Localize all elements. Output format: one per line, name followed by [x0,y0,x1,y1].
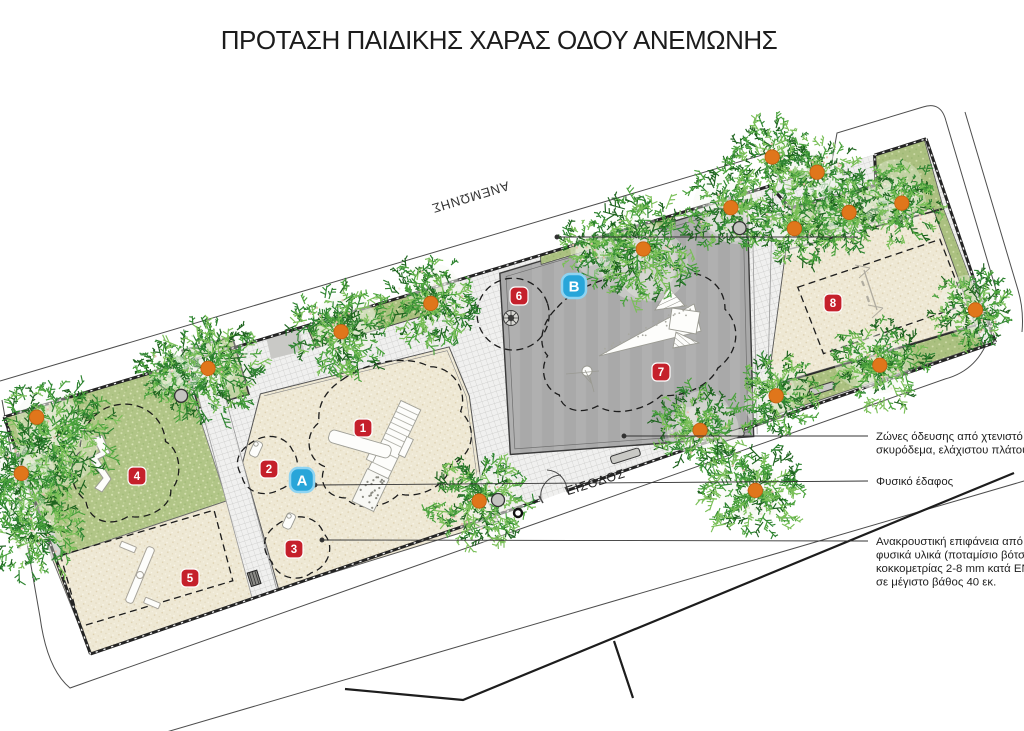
svg-text:σκυρόδεμα, ελάχιστου πλάτους 1: σκυρόδεμα, ελάχιστου πλάτους 1 [876,445,1024,457]
svg-text:B: B [569,279,580,296]
svg-text:κοκκομετρίας 2-8 mm κατά EN11: κοκκομετρίας 2-8 mm κατά EN11 [876,563,1024,575]
svg-text:6: 6 [516,291,522,303]
svg-text:φυσικά υλικά (ποταμίσιο βότσαλ: φυσικά υλικά (ποταμίσιο βότσαλο [876,550,1024,562]
svg-text:7: 7 [658,367,664,379]
svg-text:4: 4 [134,471,141,483]
svg-text:3: 3 [291,544,297,556]
svg-text:σε μέγιστο βάθος 40 εκ.: σε μέγιστο βάθος 40 εκ. [876,577,996,589]
svg-text:ΑΝΕΜΩΝΗΣ: ΑΝΕΜΩΝΗΣ [430,178,511,216]
svg-text:2: 2 [266,464,272,476]
svg-text:Φυσικό έδαφος: Φυσικό έδαφος [876,476,954,488]
svg-text:1: 1 [360,423,367,435]
svg-text:Ανακρουστική επιφάνεια από: Ανακρουστική επιφάνεια από [876,536,1023,548]
svg-text:8: 8 [830,298,837,310]
svg-text:A: A [297,473,308,490]
svg-text:Ζώνες όδευσης από χτενιστό: Ζώνες όδευσης από χτενιστό [876,431,1023,443]
svg-text:5: 5 [187,573,194,585]
